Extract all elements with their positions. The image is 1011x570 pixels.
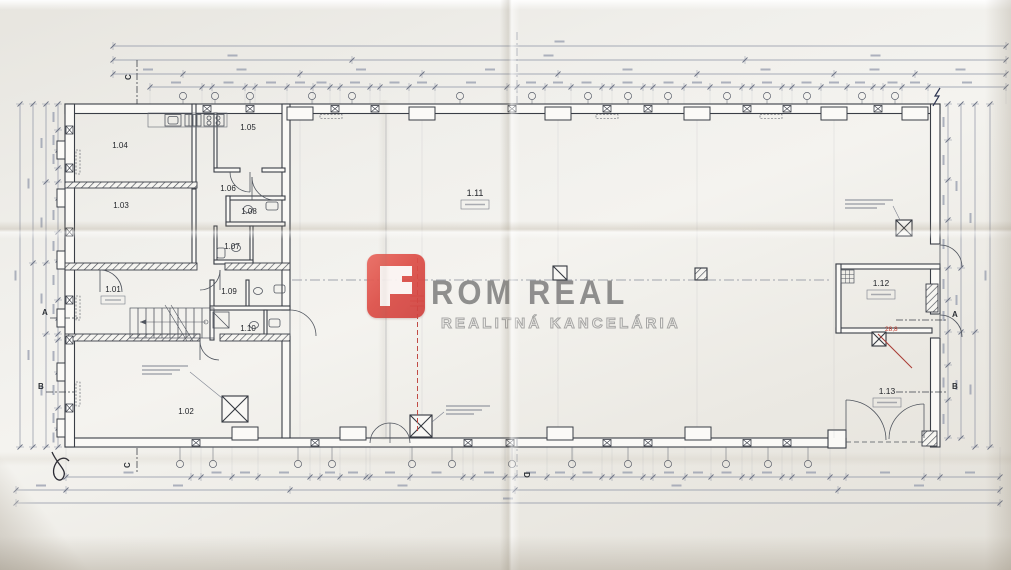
blueprint-paper: 28,8 A B A B C C D 1.01 1.02 1.03 1.04 1…	[0, 0, 1011, 570]
room-label-1-07: 1.07	[224, 242, 240, 251]
section-marker-d-bottom: D	[522, 472, 531, 478]
room-label-1-01: 1.01	[105, 285, 121, 294]
section-marker-c-top: C	[124, 74, 133, 80]
room-label-1-04: 1.04	[112, 141, 128, 150]
brand-subtitle: REALITNÁ KANCELÁRIA	[431, 315, 681, 332]
red-measurement-note: 28,8	[885, 326, 898, 333]
room-label-1-02: 1.02	[178, 407, 194, 416]
section-marker-a-left: A	[42, 308, 48, 317]
room-label-1-03: 1.03	[113, 201, 129, 210]
room-label-1-05: 1.05	[240, 123, 256, 132]
watermark-logo: ROM REAL REALITNÁ KANCELÁRIA	[366, 253, 681, 332]
section-marker-c-bottom: C	[123, 462, 132, 468]
room-label-1-12: 1.12	[873, 278, 890, 288]
room-label-1-09: 1.09	[221, 287, 237, 296]
brand-text: ROM REAL	[431, 275, 681, 310]
section-marker-b-right: B	[952, 382, 958, 391]
room-label-1-11: 1.11	[467, 188, 484, 198]
room-label-1-06: 1.06	[220, 184, 236, 193]
section-marker-a-right: A	[952, 310, 958, 319]
room-label-1-08: 1.08	[241, 207, 257, 216]
section-marker-b-left: B	[38, 382, 44, 391]
room-label-1-13: 1.13	[879, 386, 896, 396]
brand-p-icon	[366, 253, 426, 319]
room-label-1-10: 1.10	[240, 324, 256, 333]
